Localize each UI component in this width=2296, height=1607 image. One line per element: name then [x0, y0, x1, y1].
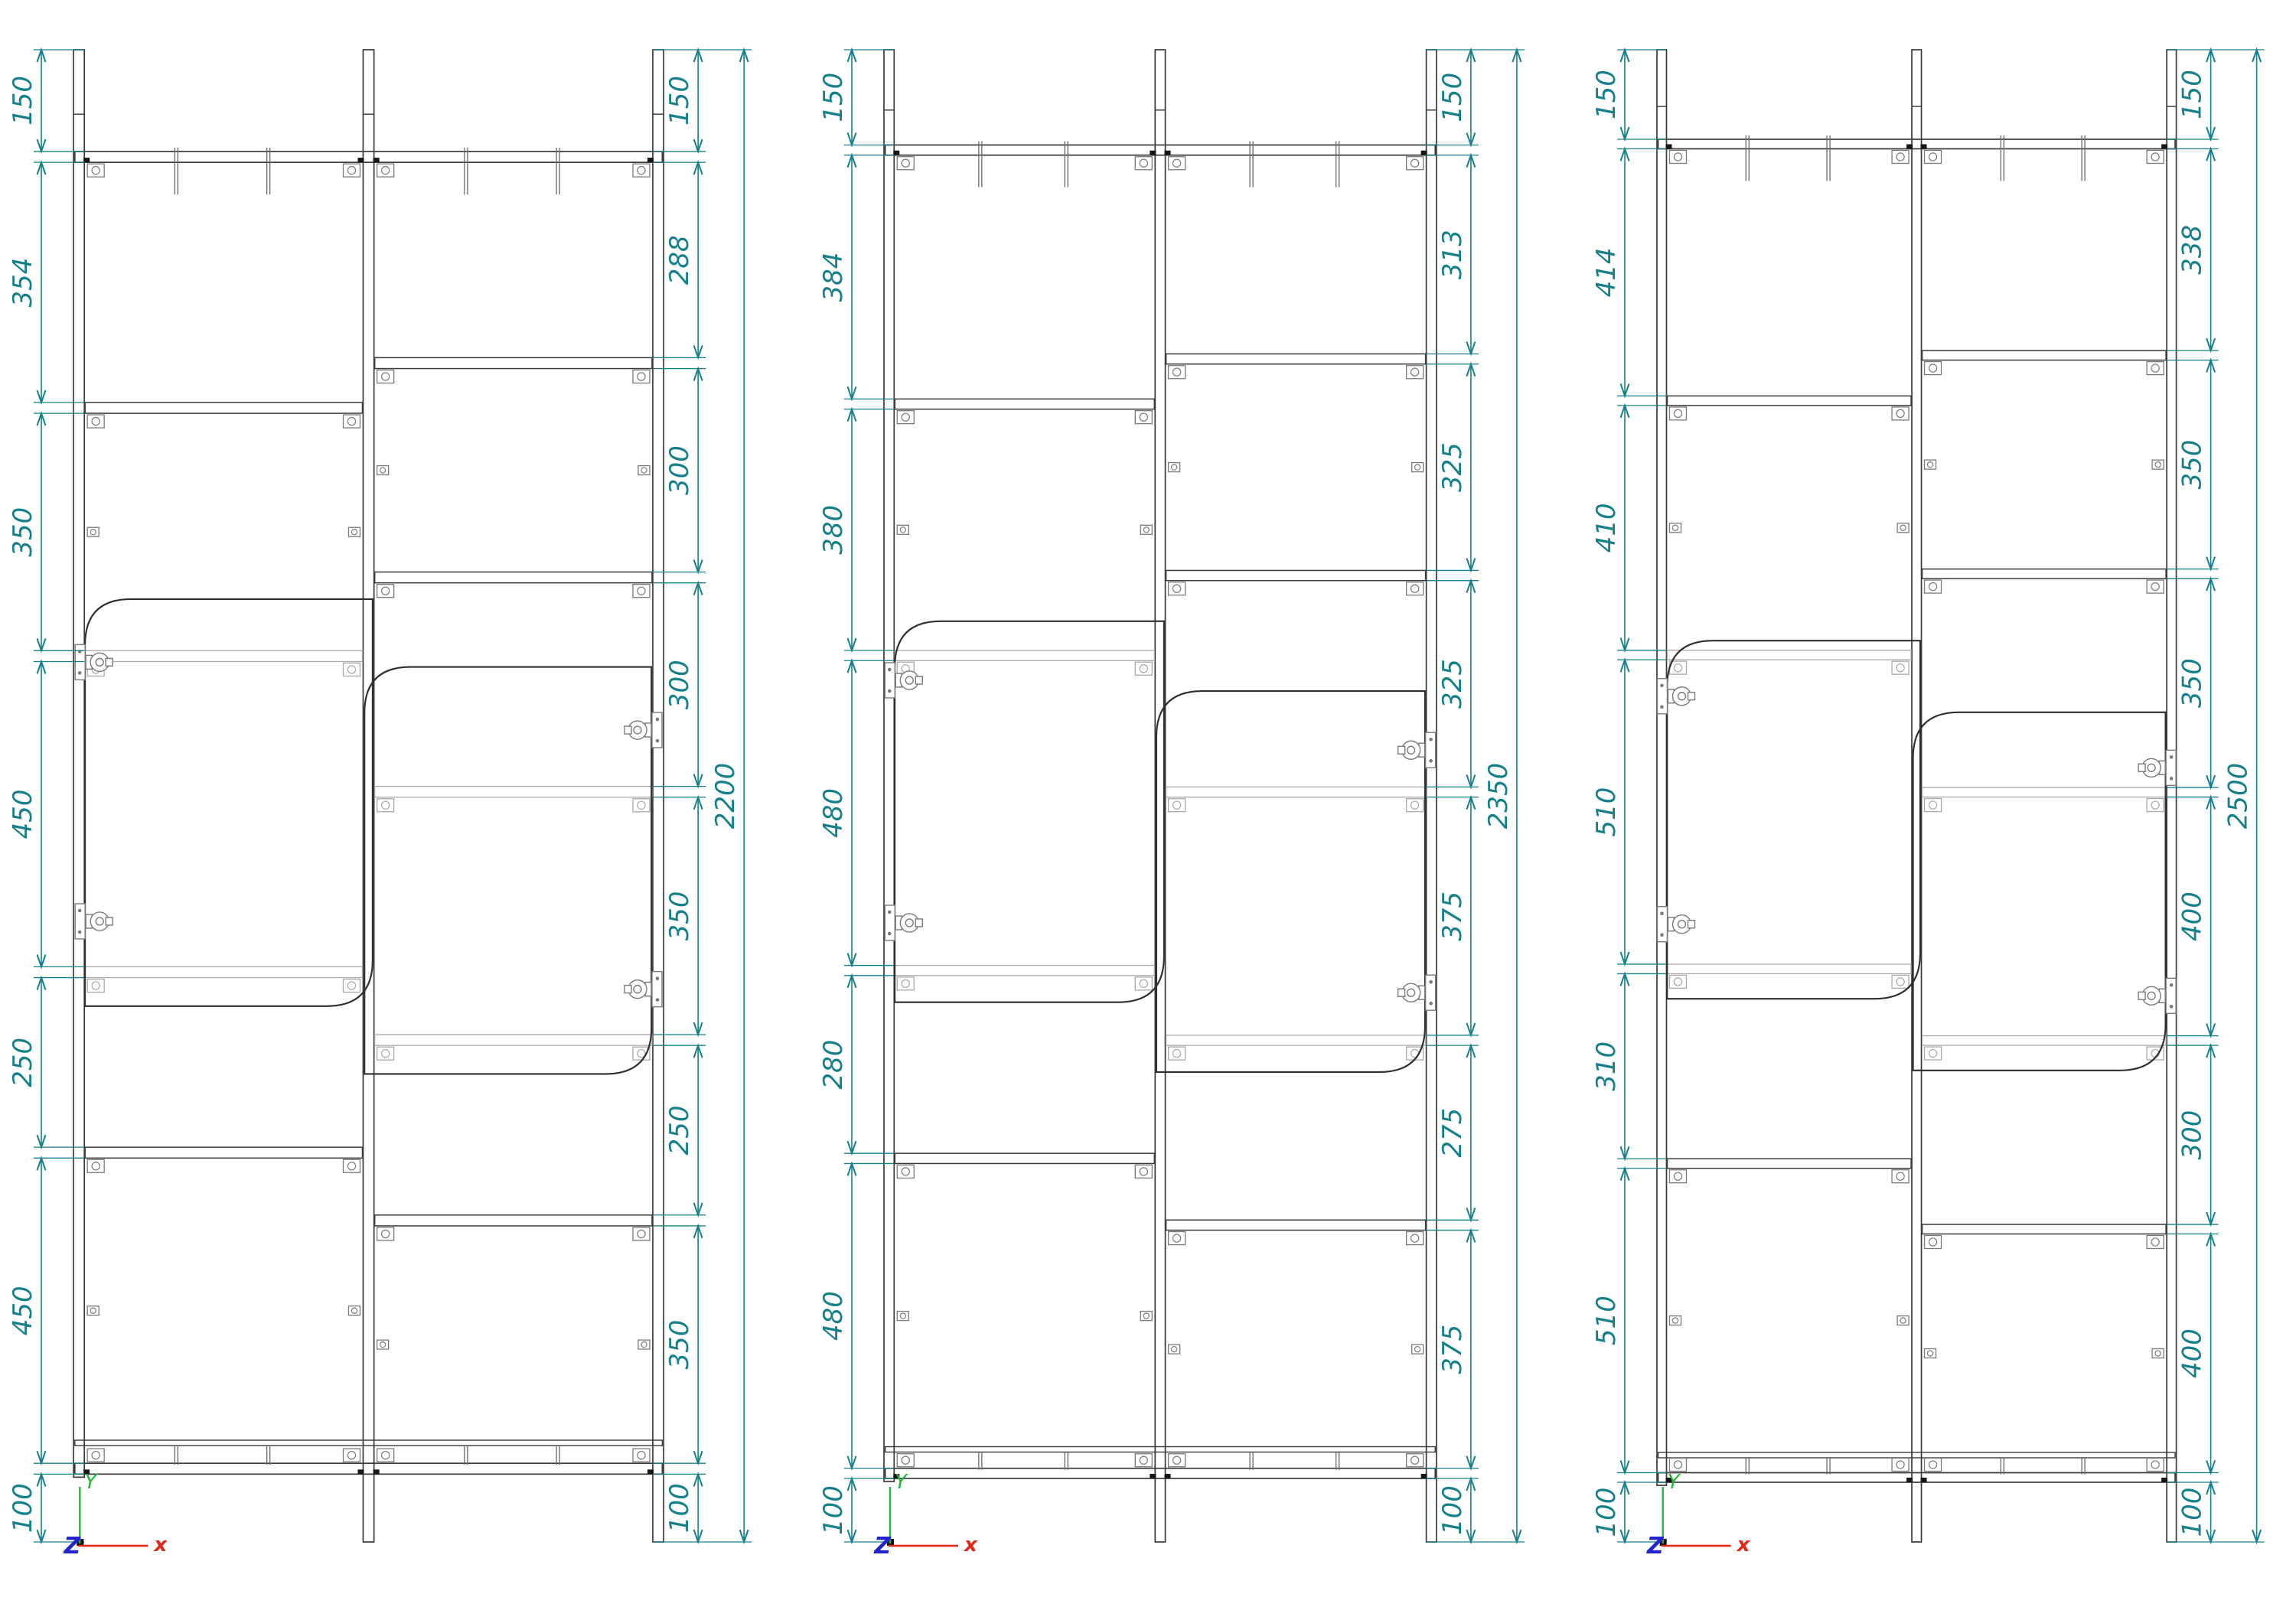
- dimension-label: 384: [818, 253, 849, 302]
- dimension-label: 280: [818, 1040, 849, 1090]
- dimension-label: 400: [2177, 1328, 2208, 1378]
- dimension-label: 325: [1437, 442, 1468, 492]
- dimension-label: 450: [8, 789, 38, 839]
- dimension-label: 338: [2177, 225, 2208, 275]
- dimension-label: 2350: [1483, 763, 1514, 830]
- dimensions: 1504144105103105101001503383503504003004…: [1591, 50, 2265, 1542]
- hinge-icon: [1657, 679, 1694, 714]
- dimension-label: 288: [664, 235, 695, 285]
- dimension-label: 100: [1591, 1488, 1622, 1537]
- dimension-label: 2500: [2223, 763, 2254, 830]
- dimension-label: 410: [1591, 503, 1622, 553]
- hinge-icon: [2138, 978, 2176, 1013]
- hinge-icon: [75, 904, 113, 939]
- dimension-label: 480: [818, 1291, 849, 1341]
- dimension-label: 414: [1591, 247, 1622, 297]
- door-right: [1156, 691, 1425, 1072]
- z-axis-label: Z: [1646, 1533, 1665, 1560]
- dimension-label: 310: [1591, 1041, 1622, 1091]
- door-right: [364, 667, 651, 1074]
- cad-canvas: 1503543504502504501001502883003003502503…: [0, 0, 2296, 1607]
- z-axis-label: Z: [873, 1533, 892, 1560]
- doors: [75, 599, 662, 1074]
- dimension-label: 354: [8, 258, 38, 308]
- cabinet-structure: [1657, 50, 2177, 1542]
- dimension-label: 100: [664, 1483, 695, 1533]
- dimension-label: 150: [2177, 70, 2208, 119]
- dimension-label: 100: [8, 1483, 38, 1533]
- dimension-label: 375: [1437, 892, 1468, 941]
- hinge-icon: [885, 663, 922, 698]
- hinge-icon: [75, 644, 113, 680]
- dimension-label: 400: [2177, 892, 2208, 941]
- cabinet-structure: [73, 50, 664, 1542]
- y-axis-label: Y: [895, 1471, 908, 1494]
- x-axis-label: x: [1736, 1534, 1751, 1556]
- elevation-drawing-2350: 1503843804802804801001503133253253752753…: [815, 0, 1546, 1607]
- z-axis-label: Z: [64, 1533, 82, 1560]
- dimension-label: 375: [1437, 1325, 1468, 1374]
- door-left: [895, 621, 1164, 1002]
- y-axis-label: Y: [84, 1471, 98, 1494]
- dimension-label: 380: [818, 505, 849, 555]
- ucs-icon: YxZ: [1646, 1471, 1751, 1560]
- elevation-drawing-2200: 1503543504502504501001502883003003502503…: [5, 0, 773, 1607]
- dimension-label: 100: [1437, 1485, 1468, 1535]
- drawings-row: 1503543504502504501001502883003003502503…: [0, 0, 2296, 1607]
- dimension-label: 150: [1437, 73, 1468, 122]
- dimension-label: 100: [2177, 1488, 2208, 1537]
- dimension-label: 510: [1591, 787, 1622, 837]
- dimension-label: 350: [2177, 440, 2208, 490]
- y-axis-label: Y: [1668, 1471, 1681, 1494]
- dimensions: 1503543504502504501001502883003003502503…: [8, 50, 752, 1542]
- dimension-label: 510: [1591, 1296, 1622, 1345]
- dimension-label: 2200: [710, 763, 741, 830]
- dimension-label: 300: [664, 445, 695, 495]
- x-axis-label: x: [963, 1534, 978, 1556]
- dimension-label: 350: [664, 1320, 695, 1370]
- dimension-label: 250: [8, 1038, 38, 1087]
- doors: [885, 621, 1435, 1072]
- hinge-icon: [1398, 732, 1436, 768]
- dimension-label: 150: [1591, 70, 1622, 119]
- dimensions: 1503843804802804801001503133253253752753…: [818, 50, 1525, 1542]
- door-right: [1913, 712, 2166, 1071]
- hinge-icon: [2138, 750, 2176, 785]
- dimension-label: 480: [818, 788, 849, 838]
- elevation-drawing-2500: 1504144105103105101001503383503504003004…: [1588, 0, 2286, 1607]
- dimension-label: 100: [818, 1485, 849, 1535]
- hinge-icon: [625, 972, 662, 1007]
- door-left: [85, 599, 373, 1006]
- dimension-label: 150: [664, 76, 695, 125]
- cabinet-structure: [884, 50, 1437, 1542]
- dimension-label: 325: [1437, 659, 1468, 709]
- ucs-icon: YxZ: [873, 1471, 978, 1560]
- door-left: [1667, 641, 1920, 999]
- hinge-icon: [625, 712, 662, 748]
- dimension-label: 350: [2177, 658, 2208, 708]
- dimension-label: 313: [1437, 230, 1468, 279]
- dimension-label: 250: [664, 1106, 695, 1156]
- doors: [1657, 641, 2176, 1071]
- dimension-label: 350: [664, 891, 695, 940]
- hinge-icon: [885, 905, 922, 940]
- dimension-label: 450: [8, 1286, 38, 1335]
- dimension-label: 300: [664, 660, 695, 709]
- dimension-label: 150: [818, 73, 849, 122]
- dimension-label: 300: [2177, 1110, 2208, 1160]
- dimension-label: 350: [8, 507, 38, 557]
- dimension-label: 275: [1437, 1108, 1468, 1158]
- hinge-icon: [1398, 975, 1436, 1010]
- hinge-icon: [1657, 907, 1694, 942]
- dimension-label: 150: [8, 76, 38, 125]
- x-axis-label: x: [152, 1534, 168, 1556]
- ucs-icon: YxZ: [64, 1471, 168, 1560]
